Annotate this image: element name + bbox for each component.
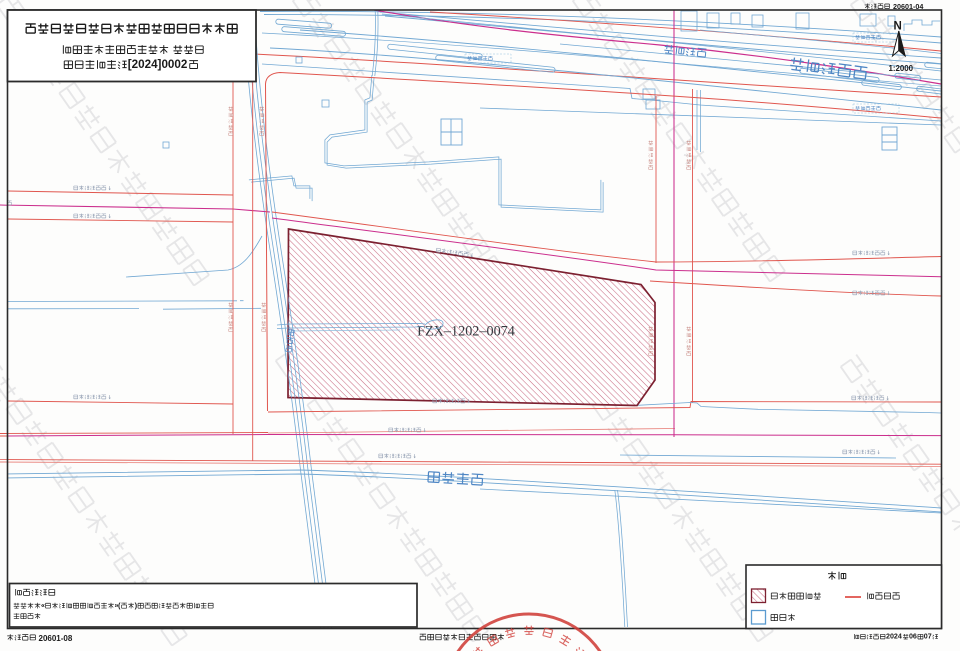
svg-text:FZX–1202–0074: FZX–1202–0074	[417, 324, 515, 340]
svg-text:N: N	[894, 21, 902, 33]
svg-text:06: 06	[909, 633, 917, 641]
svg-text:[2024]0002: [2024]0002	[128, 58, 188, 71]
svg-text:1:2000: 1:2000	[889, 64, 914, 73]
svg-text:07: 07	[924, 633, 932, 641]
svg-text:«: «	[41, 603, 45, 610]
svg-text:20601-08: 20601-08	[39, 634, 73, 643]
svg-text:2024: 2024	[886, 633, 902, 641]
svg-text:20601-04: 20601-04	[893, 2, 923, 11]
